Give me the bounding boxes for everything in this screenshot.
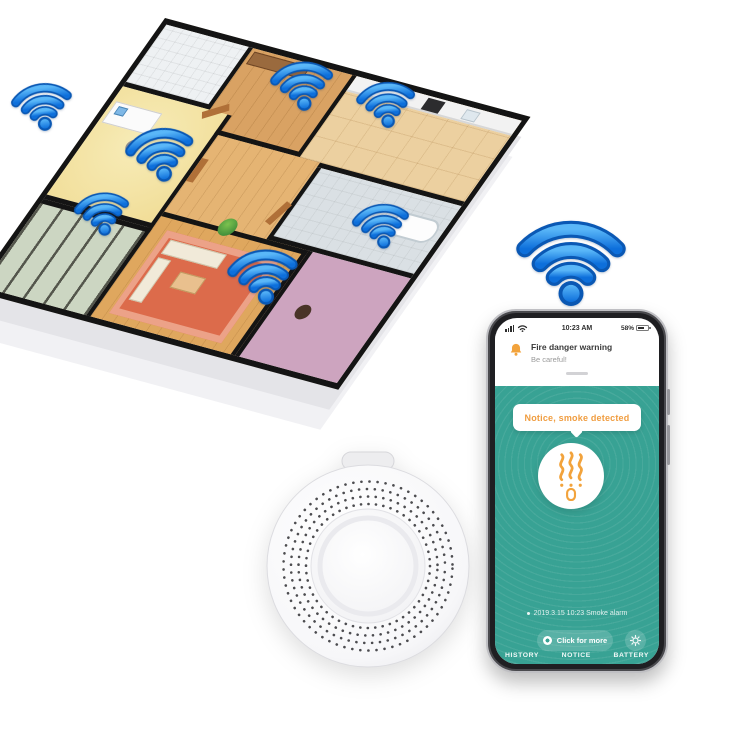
notification-subtitle: Be careful! bbox=[531, 355, 612, 364]
battery-percent: 58% bbox=[621, 325, 634, 332]
click-for-more-button[interactable]: Click for more bbox=[537, 630, 613, 651]
detector-center-button bbox=[311, 509, 425, 623]
smoke-icon bbox=[554, 451, 588, 501]
phone-screen: 10:23 AM 58% Fire danger warning Be care… bbox=[495, 318, 659, 664]
bottom-nav: HISTORY NOTICE BATTERY bbox=[505, 652, 649, 659]
alert-bubble-text: Notice, smoke detected bbox=[525, 413, 630, 423]
status-bar: 10:23 AM 58% bbox=[495, 318, 659, 334]
smoke-detector-device bbox=[262, 450, 474, 670]
event-log-entry: 2019.3.15 10:23 Smoke alarm bbox=[495, 610, 659, 617]
settings-button[interactable] bbox=[625, 630, 646, 651]
app-main: Notice, smoke detected bbox=[495, 386, 659, 664]
wifi-icon bbox=[222, 236, 303, 310]
smartphone: 10:23 AM 58% Fire danger warning Be care… bbox=[486, 309, 668, 673]
gear-icon bbox=[629, 634, 642, 647]
nav-history[interactable]: HISTORY bbox=[505, 652, 539, 659]
wifi-icon bbox=[352, 71, 419, 131]
volume-button bbox=[667, 425, 670, 465]
battery-icon bbox=[636, 325, 649, 332]
wifi-icon-large bbox=[508, 206, 634, 306]
small-table bbox=[291, 303, 315, 321]
wifi-icon bbox=[266, 50, 338, 115]
nav-battery[interactable]: BATTERY bbox=[613, 652, 649, 659]
bullet-dot bbox=[527, 612, 530, 615]
wifi-icon bbox=[6, 71, 77, 135]
sheet-drag-handle[interactable] bbox=[566, 372, 588, 375]
more-button-label: Click for more bbox=[557, 636, 607, 645]
wifi-icon bbox=[119, 113, 201, 188]
wifi-icon bbox=[70, 181, 135, 240]
notification-title: Fire danger warning bbox=[531, 342, 612, 352]
notification-sheet: Fire danger warning Be careful! bbox=[495, 334, 659, 386]
event-text: 2019.3.15 10:23 Smoke alarm bbox=[534, 610, 628, 617]
record-dot-icon bbox=[543, 636, 552, 645]
notification-card[interactable]: Fire danger warning Be careful! bbox=[495, 334, 659, 364]
smoke-status-circle bbox=[538, 443, 604, 509]
power-button bbox=[667, 389, 670, 415]
nav-notice[interactable]: NOTICE bbox=[562, 652, 591, 659]
wifi-icon bbox=[348, 192, 415, 253]
bell-icon bbox=[509, 342, 523, 357]
